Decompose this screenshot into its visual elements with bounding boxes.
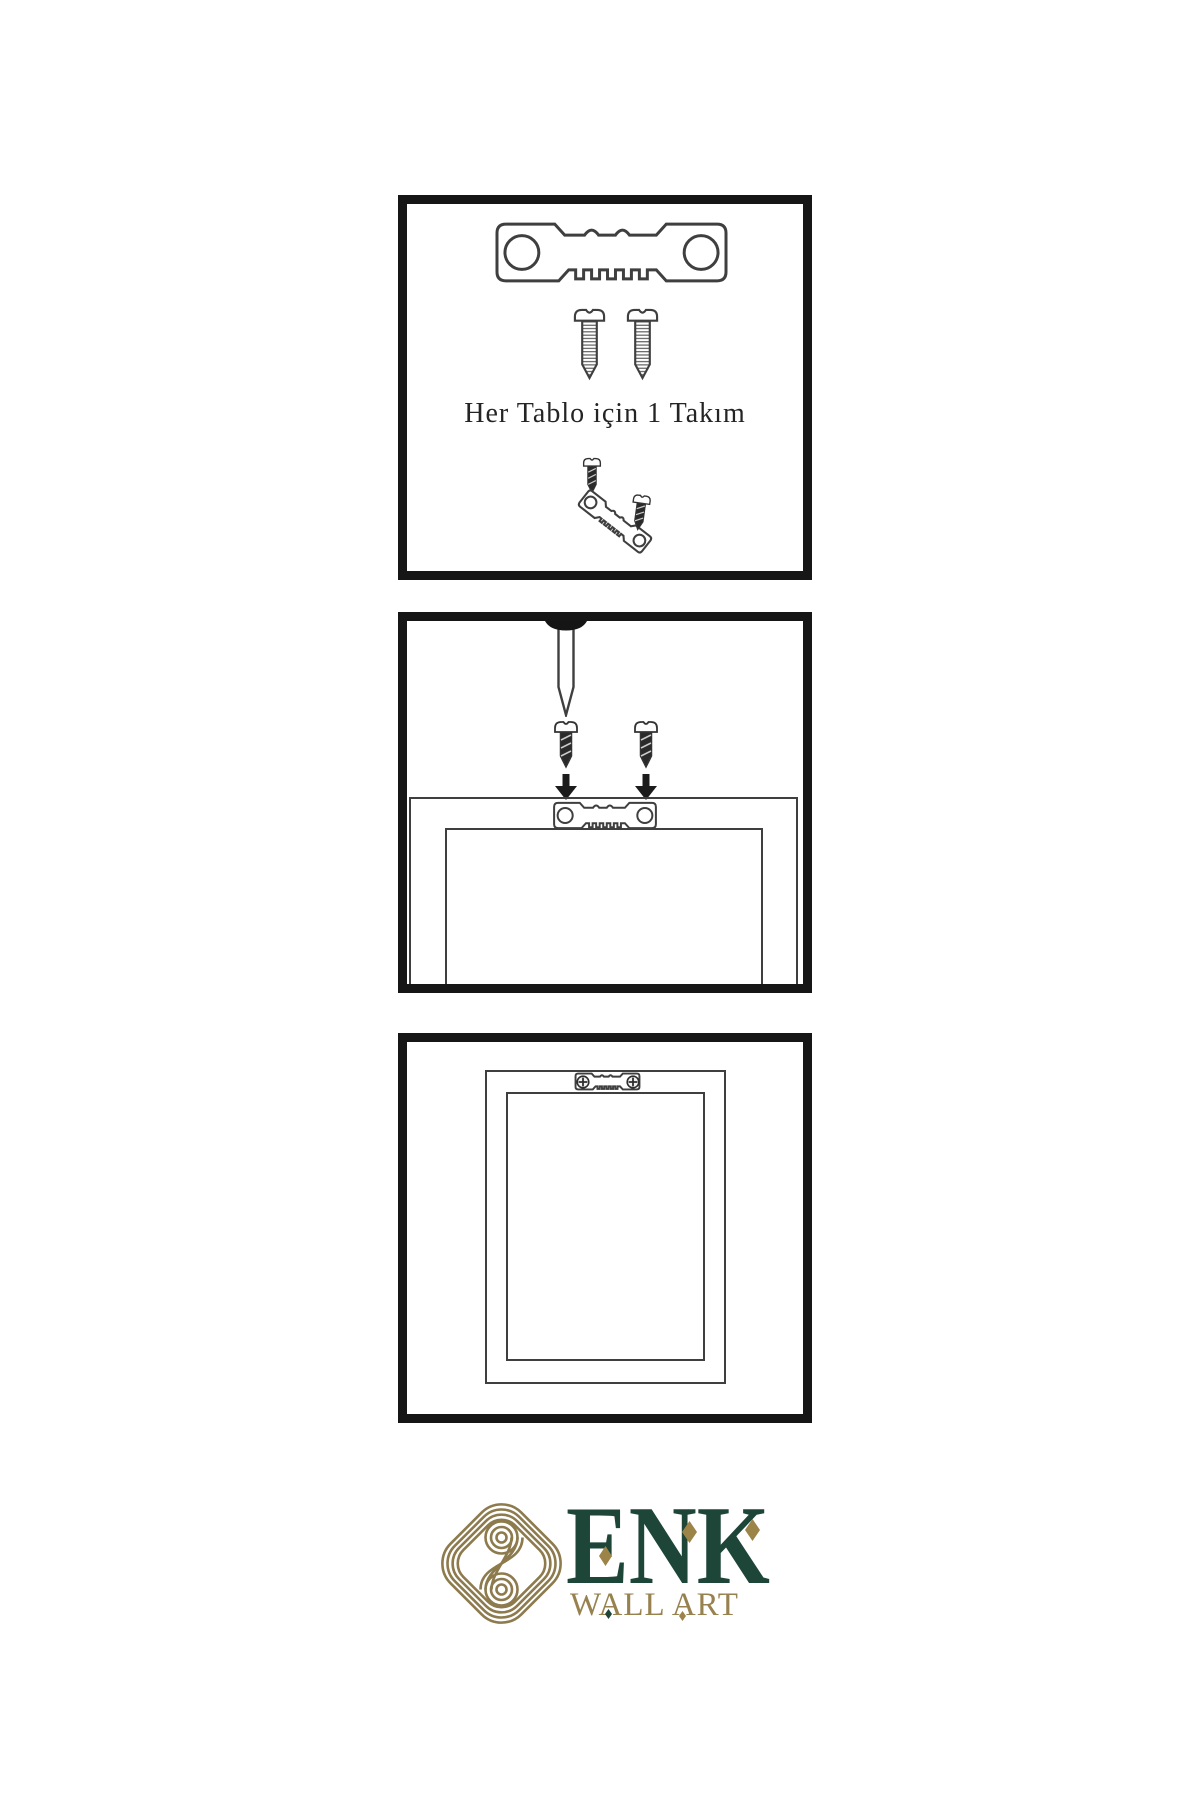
brand-wordmark: ENK xyxy=(566,1490,770,1602)
hanging-frame-inner-outline xyxy=(506,1092,705,1361)
step2-panel xyxy=(398,612,812,993)
instruction-sheet: Her Tablo için 1 Takım xyxy=(0,0,1200,1800)
screw-icon xyxy=(633,720,659,770)
step3-panel xyxy=(398,1033,812,1423)
sawtooth-hanger-icon xyxy=(495,222,728,283)
brand-tagline: WALL ART xyxy=(570,1589,739,1622)
frame-back-inner-outline xyxy=(445,828,763,984)
screw-icon xyxy=(625,307,660,381)
screw-icon xyxy=(627,493,652,533)
screw-head-icon xyxy=(576,1075,590,1089)
sawtooth-hanger-icon xyxy=(553,802,657,829)
screw-head-icon xyxy=(626,1075,640,1089)
screw-icon xyxy=(572,307,607,381)
wall-nail-icon xyxy=(545,620,587,717)
kit-caption: Her Tablo için 1 Takım xyxy=(407,398,803,430)
knot-logo-icon xyxy=(440,1500,563,1627)
step1-panel: Her Tablo için 1 Takım xyxy=(398,195,812,580)
screw-icon xyxy=(553,720,579,770)
